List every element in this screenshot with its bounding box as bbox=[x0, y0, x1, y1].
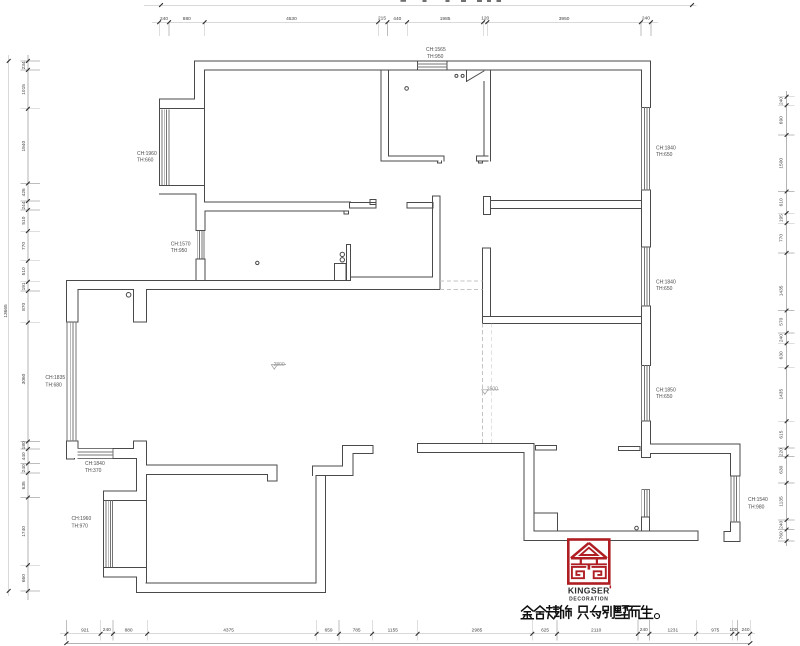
svg-text:510: 510 bbox=[21, 216, 27, 224]
svg-text:659: 659 bbox=[325, 628, 333, 634]
svg-text:1940: 1940 bbox=[21, 141, 27, 152]
svg-text:3950: 3950 bbox=[559, 16, 570, 22]
svg-text:240: 240 bbox=[779, 334, 785, 342]
svg-text:1740: 1740 bbox=[21, 526, 27, 537]
svg-text:240: 240 bbox=[640, 627, 648, 633]
svg-text:TH:650: TH:650 bbox=[656, 286, 673, 292]
svg-text:635: 635 bbox=[21, 481, 27, 489]
svg-text:100: 100 bbox=[729, 627, 737, 633]
svg-text:880: 880 bbox=[125, 628, 133, 634]
svg-text:220: 220 bbox=[779, 448, 785, 456]
svg-text:240: 240 bbox=[779, 520, 785, 528]
svg-text:770: 770 bbox=[21, 242, 27, 250]
svg-text:1985: 1985 bbox=[440, 16, 451, 22]
svg-text:TH:950: TH:950 bbox=[171, 248, 188, 254]
svg-text:690: 690 bbox=[779, 116, 785, 124]
svg-text:244: 244 bbox=[21, 201, 27, 209]
svg-text:CH:1540: CH:1540 bbox=[748, 497, 768, 503]
svg-text:570: 570 bbox=[779, 317, 785, 325]
svg-text:240: 240 bbox=[741, 627, 749, 633]
svg-text:4530: 4530 bbox=[286, 16, 297, 22]
svg-text:240: 240 bbox=[160, 16, 168, 22]
svg-text:1015: 1015 bbox=[21, 84, 27, 95]
svg-text:440: 440 bbox=[21, 452, 27, 460]
svg-text:870: 870 bbox=[21, 302, 27, 310]
svg-text:120: 120 bbox=[481, 15, 489, 21]
svg-text:TH:370: TH:370 bbox=[85, 468, 102, 474]
svg-text:180: 180 bbox=[21, 441, 27, 449]
svg-text:CH:1840: CH:1840 bbox=[85, 461, 105, 467]
svg-text:625: 625 bbox=[541, 628, 549, 634]
svg-text:CH:1570: CH:1570 bbox=[171, 242, 191, 248]
svg-text:TH:660: TH:660 bbox=[137, 158, 154, 164]
svg-text:240: 240 bbox=[642, 15, 650, 21]
svg-text:760: 760 bbox=[779, 531, 785, 539]
svg-text:TH:970: TH:970 bbox=[72, 523, 89, 529]
svg-text:3060: 3060 bbox=[21, 373, 27, 384]
svg-text:TH:680: TH:680 bbox=[45, 382, 62, 388]
svg-text:4375: 4375 bbox=[223, 628, 234, 634]
svg-text:TH:650: TH:650 bbox=[656, 394, 673, 400]
svg-text:1231: 1231 bbox=[667, 628, 678, 634]
svg-text:195: 195 bbox=[779, 214, 785, 222]
svg-text:2800: 2800 bbox=[274, 362, 285, 368]
svg-text:785: 785 bbox=[353, 628, 361, 634]
svg-text:240: 240 bbox=[779, 97, 785, 105]
svg-text:510: 510 bbox=[21, 267, 27, 275]
svg-text:921: 921 bbox=[81, 628, 89, 634]
svg-text:240: 240 bbox=[103, 627, 111, 633]
svg-text:DECORATION: DECORATION bbox=[569, 596, 608, 602]
svg-text:880: 880 bbox=[183, 16, 191, 22]
svg-text:KINGSER: KINGSER bbox=[568, 586, 610, 596]
svg-text:240: 240 bbox=[21, 464, 27, 472]
svg-text:975: 975 bbox=[711, 628, 719, 634]
svg-text:CH:1840: CH:1840 bbox=[656, 145, 676, 151]
svg-text:630: 630 bbox=[779, 351, 785, 359]
svg-text:CH:1565: CH:1565 bbox=[426, 47, 446, 53]
svg-text:1155: 1155 bbox=[388, 628, 399, 634]
svg-text:CH:1960: CH:1960 bbox=[72, 516, 92, 522]
svg-text:770: 770 bbox=[779, 234, 785, 242]
svg-text:440: 440 bbox=[393, 16, 401, 22]
svg-text:630: 630 bbox=[779, 465, 785, 473]
svg-text:1435: 1435 bbox=[779, 285, 785, 296]
svg-text:CH:1850: CH:1850 bbox=[656, 387, 676, 393]
svg-text:234: 234 bbox=[21, 61, 27, 69]
svg-text:CH:1835: CH:1835 bbox=[45, 375, 65, 381]
svg-text:191: 191 bbox=[21, 282, 27, 290]
svg-text:610: 610 bbox=[779, 198, 785, 206]
svg-text:2110: 2110 bbox=[591, 628, 602, 634]
svg-text:660: 660 bbox=[21, 574, 27, 582]
svg-text:2985: 2985 bbox=[472, 628, 483, 634]
svg-text:TH:980: TH:980 bbox=[748, 504, 765, 510]
svg-text:TH:950: TH:950 bbox=[427, 54, 444, 60]
svg-text:615: 615 bbox=[779, 430, 785, 438]
svg-text:1135: 1135 bbox=[779, 496, 785, 507]
svg-text:1500: 1500 bbox=[779, 158, 785, 169]
svg-text:215: 215 bbox=[378, 15, 386, 21]
svg-text:13665: 13665 bbox=[3, 304, 9, 318]
svg-text:CH:1840: CH:1840 bbox=[656, 279, 676, 285]
svg-text:426: 426 bbox=[21, 188, 27, 196]
svg-text:1435: 1435 bbox=[779, 389, 785, 400]
svg-text:CH:1960: CH:1960 bbox=[137, 151, 157, 157]
svg-text:TH:650: TH:650 bbox=[656, 152, 673, 158]
